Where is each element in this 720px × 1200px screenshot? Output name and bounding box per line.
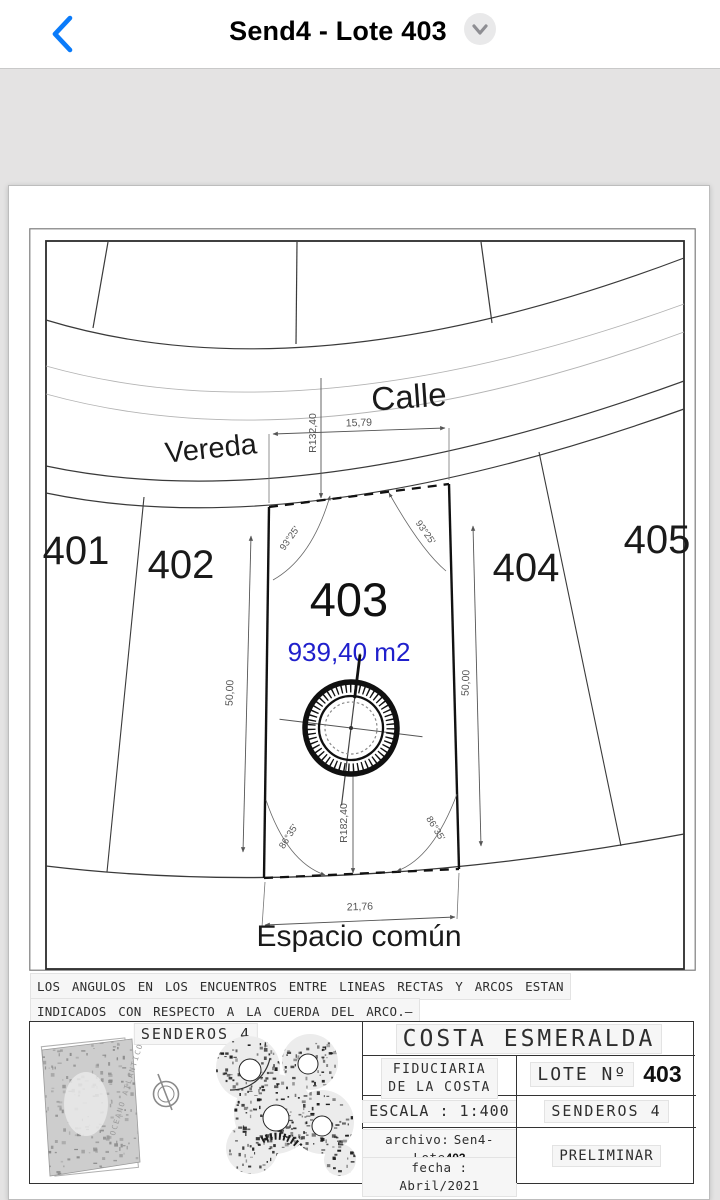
plan-note: LOS ANGULOS EN LOS ENCUENTROS ENTRE LINE… bbox=[31, 974, 570, 1024]
dim-rear-width: 21,76 bbox=[347, 901, 374, 914]
status-cell: PRELIMINAR bbox=[517, 1128, 696, 1183]
project-title-cell: COSTA ESMERALDA bbox=[363, 1022, 695, 1056]
dim-left-depth: 50,00 bbox=[224, 679, 237, 706]
dim-right-depth: 50,00 bbox=[460, 669, 473, 696]
common-space-label: Espacio común bbox=[256, 920, 461, 953]
lot-401-label: 401 bbox=[43, 529, 110, 573]
note-line-1: LOS ANGULOS EN LOS ENCUENTROS ENTRE LINE… bbox=[37, 979, 564, 994]
dim-front-width: 15,79 bbox=[346, 417, 373, 430]
document-scroll-area[interactable]: Calle Vereda 401 402 403 939 bbox=[0, 68, 720, 1200]
file-cell: archivo: Sen4-Lote403 bbox=[363, 1128, 516, 1154]
lot-number-cell: LOTE Nº403 bbox=[517, 1056, 696, 1096]
scale-value: ESCALA : 1:400 bbox=[369, 1102, 509, 1120]
lot-number-value: 403 bbox=[643, 1061, 681, 1087]
project-title: COSTA ESMERALDA bbox=[403, 1026, 656, 1052]
status-value: PRELIMINAR bbox=[559, 1148, 653, 1164]
site-plan-drawing: Calle Vereda 401 402 403 939 bbox=[29, 228, 696, 971]
scale-cell: ESCALA : 1:400 bbox=[363, 1096, 516, 1128]
back-button[interactable] bbox=[46, 11, 80, 57]
title-expand-button[interactable] bbox=[464, 13, 496, 45]
lot-number-label: LOTE Nº bbox=[537, 1064, 627, 1085]
masterplan-thumbnail: OCEANO ATLANTICO bbox=[34, 1034, 146, 1187]
developer-cell: FIDUCIARIA DE LA COSTA bbox=[363, 1056, 516, 1096]
dim-rear-radius: R182,40 bbox=[338, 803, 350, 843]
street-label: Calle bbox=[370, 375, 448, 417]
nav-bar: Send4 - Lote 403 bbox=[0, 0, 720, 69]
sector-name: SENDEROS 4 bbox=[551, 1102, 661, 1120]
lot-402-label: 402 bbox=[148, 543, 215, 587]
mini-compass-icon bbox=[146, 1066, 186, 1123]
chevron-down-icon bbox=[464, 13, 496, 45]
developer-name-line1: FIDUCIARIA bbox=[393, 1062, 486, 1077]
note-line-2: INDICADOS CON RESPECTO A LA CUERDA DEL A… bbox=[37, 1004, 413, 1019]
document-page: Calle Vereda 401 402 403 939 bbox=[8, 185, 710, 1200]
location-maps: SENDEROS 4 OCEANO ATLANTICO bbox=[30, 1022, 362, 1183]
file-label: archivo: bbox=[385, 1132, 449, 1147]
chevron-left-icon bbox=[46, 11, 80, 57]
title-block-table: COSTA ESMERALDA FIDUCIARIA DE LA COSTA E… bbox=[362, 1022, 695, 1183]
lot-405-label: 405 bbox=[624, 518, 691, 562]
lot-404-label: 404 bbox=[493, 546, 560, 590]
title-block: SENDEROS 4 OCEANO ATLANTICO bbox=[29, 1021, 694, 1184]
nav-title: Send4 - Lote 403 bbox=[98, 16, 578, 47]
sector-cell: SENDEROS 4 bbox=[517, 1096, 696, 1128]
date-cell: fecha : Abril/2021 bbox=[363, 1154, 516, 1183]
sector-map-thumbnail bbox=[210, 1030, 356, 1181]
date-value: fecha : Abril/2021 bbox=[399, 1160, 479, 1193]
developer-name-line2: DE LA COSTA bbox=[388, 1080, 491, 1095]
dim-front-radius: R132,40 bbox=[307, 413, 319, 453]
lot-403-label: 403 bbox=[310, 573, 388, 626]
lot-403-area: 939,40 m2 bbox=[288, 637, 411, 667]
